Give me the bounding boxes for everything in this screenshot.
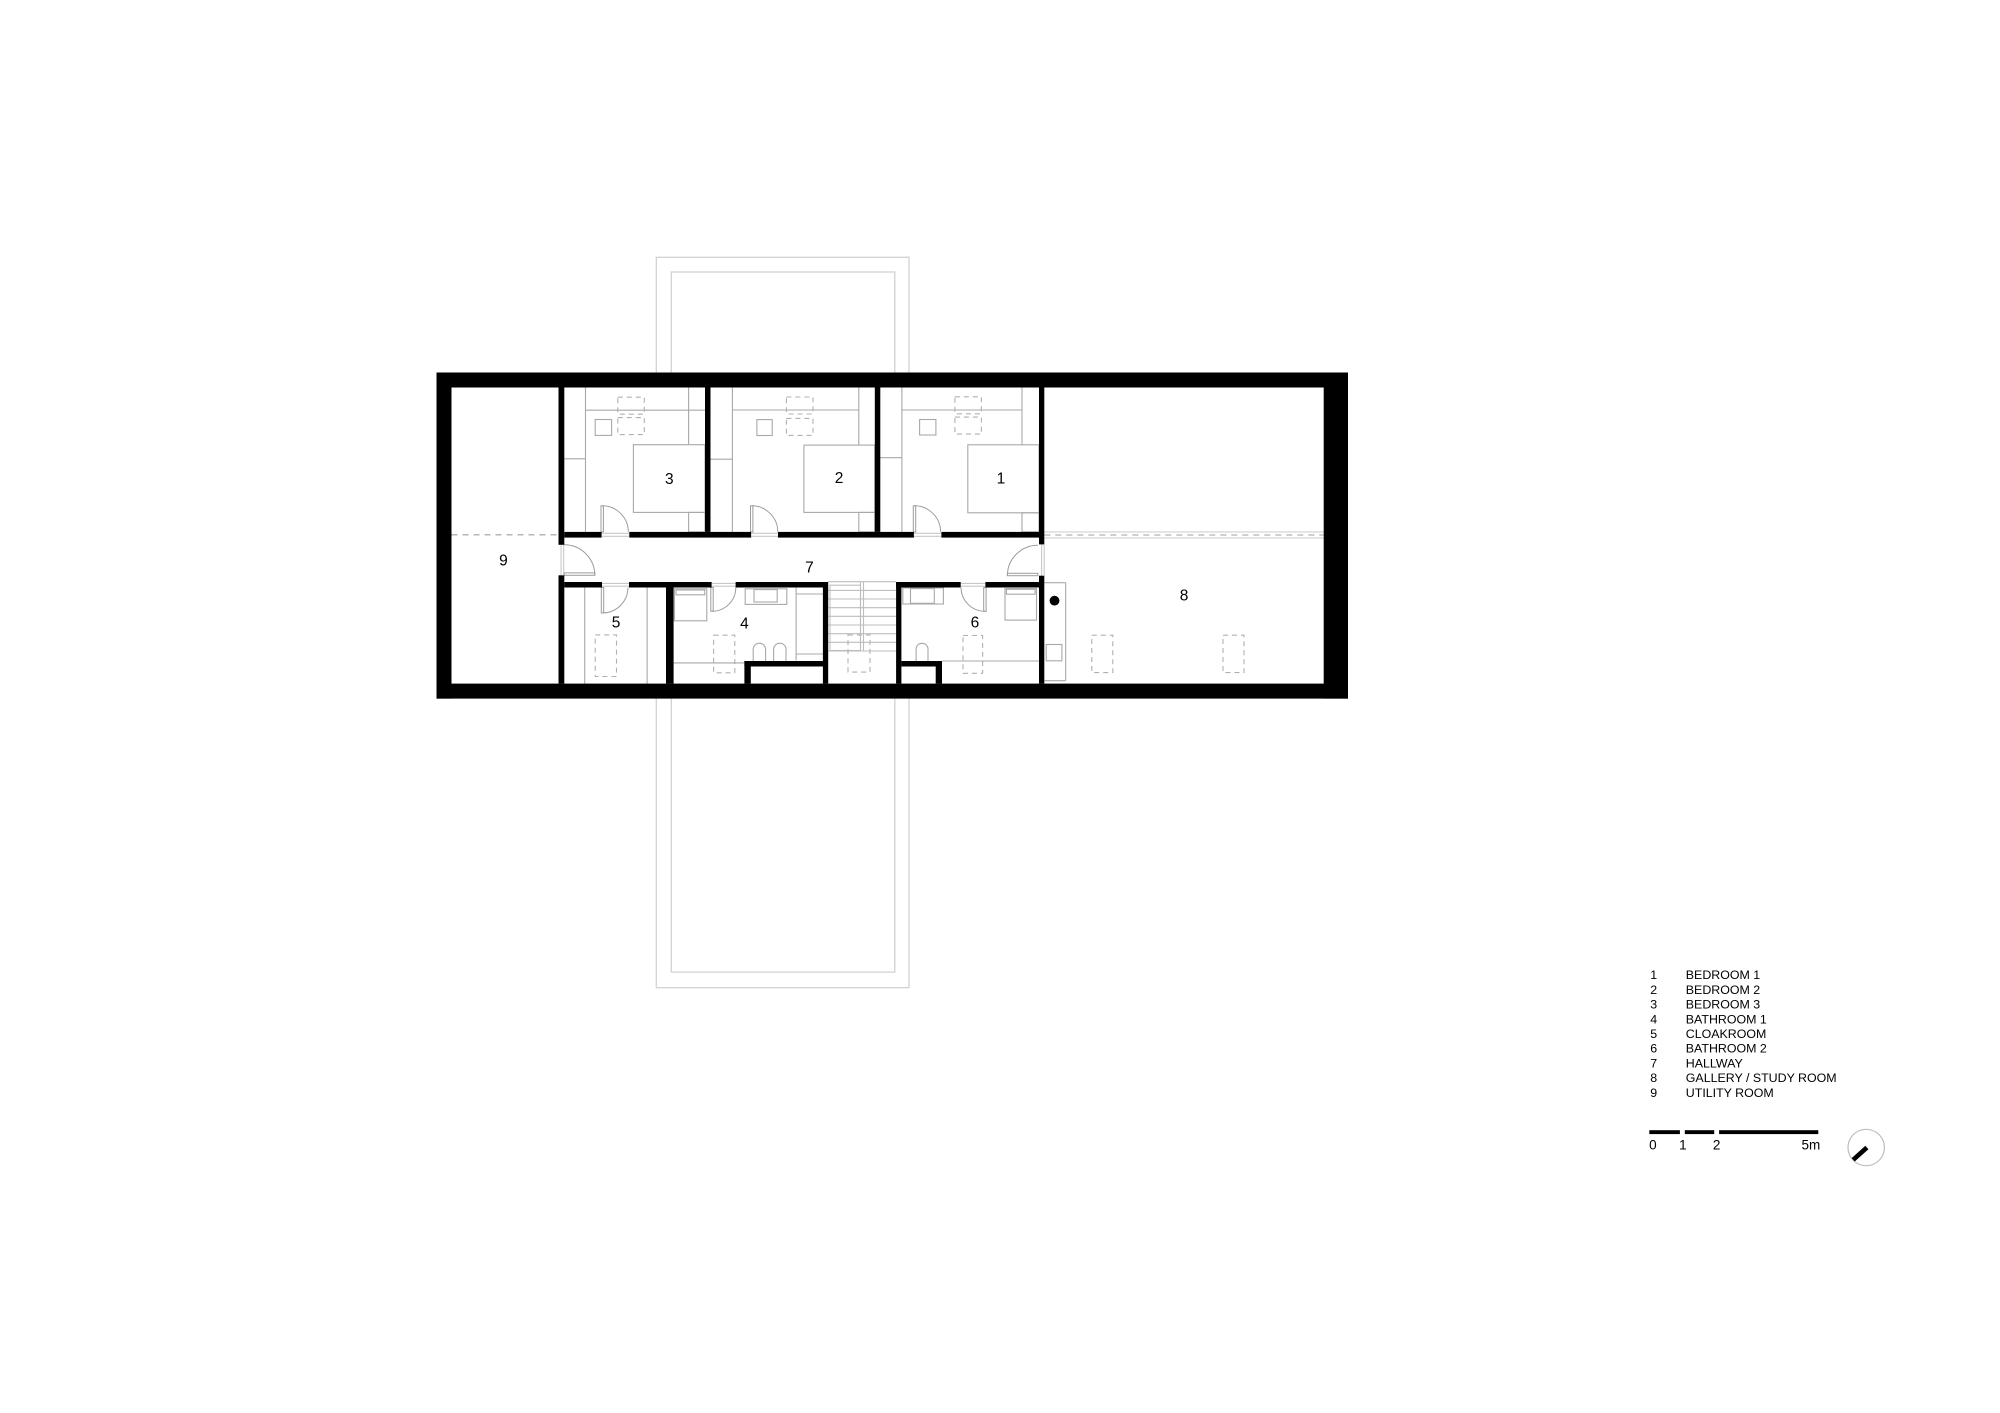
svg-text:9: 9 (1650, 1086, 1657, 1100)
svg-text:5: 5 (1650, 1027, 1657, 1041)
svg-text:1: 1 (1650, 968, 1657, 982)
svg-text:6: 6 (1650, 1042, 1657, 1056)
svg-text:1: 1 (997, 471, 1006, 488)
svg-text:3: 3 (665, 471, 674, 488)
svg-text:HALLWAY: HALLWAY (1686, 1056, 1743, 1070)
svg-text:BEDROOM 3: BEDROOM 3 (1686, 998, 1760, 1012)
svg-text:CLOAKROOM: CLOAKROOM (1686, 1027, 1767, 1041)
svg-text:1: 1 (1679, 1137, 1687, 1152)
svg-text:4: 4 (740, 615, 749, 632)
svg-text:GALLERY / STUDY ROOM: GALLERY / STUDY ROOM (1686, 1071, 1837, 1085)
svg-text:0: 0 (1649, 1137, 1657, 1152)
svg-text:2: 2 (835, 470, 844, 487)
svg-text:BEDROOM 1: BEDROOM 1 (1686, 968, 1760, 982)
svg-text:BEDROOM 2: BEDROOM 2 (1686, 983, 1760, 997)
svg-text:5m: 5m (1802, 1137, 1821, 1152)
svg-text:8: 8 (1180, 588, 1189, 605)
svg-text:5: 5 (612, 615, 621, 632)
svg-text:2: 2 (1650, 983, 1657, 997)
svg-text:3: 3 (1650, 998, 1657, 1012)
svg-text:4: 4 (1650, 1012, 1657, 1026)
svg-text:7: 7 (1650, 1056, 1657, 1070)
svg-text:UTILITY ROOM: UTILITY ROOM (1686, 1086, 1774, 1100)
svg-text:9: 9 (499, 553, 508, 570)
svg-text:6: 6 (971, 615, 980, 632)
svg-text:2: 2 (1713, 1137, 1721, 1152)
svg-text:8: 8 (1650, 1071, 1657, 1085)
svg-text:BATHROOM 2: BATHROOM 2 (1686, 1042, 1767, 1056)
svg-text:BATHROOM 1: BATHROOM 1 (1686, 1012, 1767, 1026)
svg-text:7: 7 (805, 559, 814, 576)
